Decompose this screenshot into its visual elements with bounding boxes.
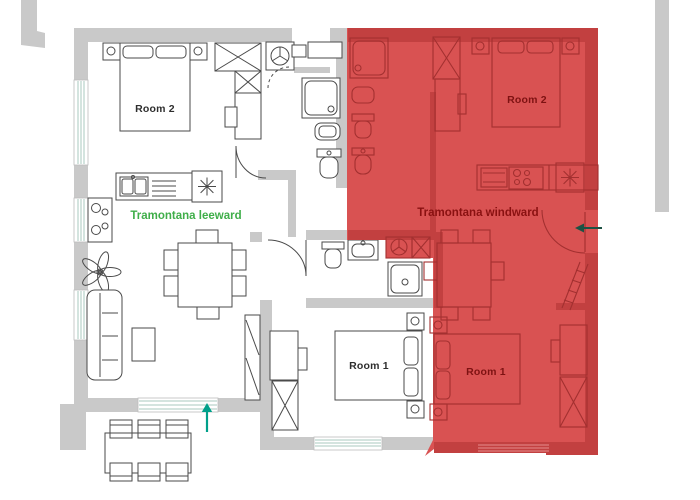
unit-label-windward: Tramontana windward bbox=[417, 207, 538, 219]
wardrobe-icon bbox=[215, 43, 261, 139]
sideboard bbox=[245, 315, 260, 400]
room-label-left-room2: Room 2 bbox=[135, 103, 175, 115]
room-label-right-room1: Room 1 bbox=[466, 366, 506, 378]
dining-table-left bbox=[164, 230, 246, 319]
sofa bbox=[87, 290, 122, 380]
terrace-furniture bbox=[105, 420, 191, 481]
wardrobe-icon bbox=[272, 381, 298, 430]
unit-label-leeward: Tramontana leeward bbox=[130, 210, 241, 222]
fridge-snowflake-icon bbox=[198, 178, 216, 196]
washing-machine-icon bbox=[266, 42, 294, 70]
stove-left bbox=[88, 198, 112, 242]
dresser-left bbox=[270, 331, 298, 380]
room-label-left-room1: Room 1 bbox=[349, 360, 389, 372]
room-label-right-room2: Room 2 bbox=[507, 94, 547, 106]
floor-plan-drawing bbox=[0, 0, 700, 500]
coffee-table bbox=[132, 328, 155, 361]
floor-plan: Room 2 Room 2 Tramontana leeward Tramont… bbox=[0, 0, 700, 500]
fridge-snowflake-icon bbox=[561, 169, 579, 187]
bathroom1-fixtures bbox=[302, 78, 341, 178]
